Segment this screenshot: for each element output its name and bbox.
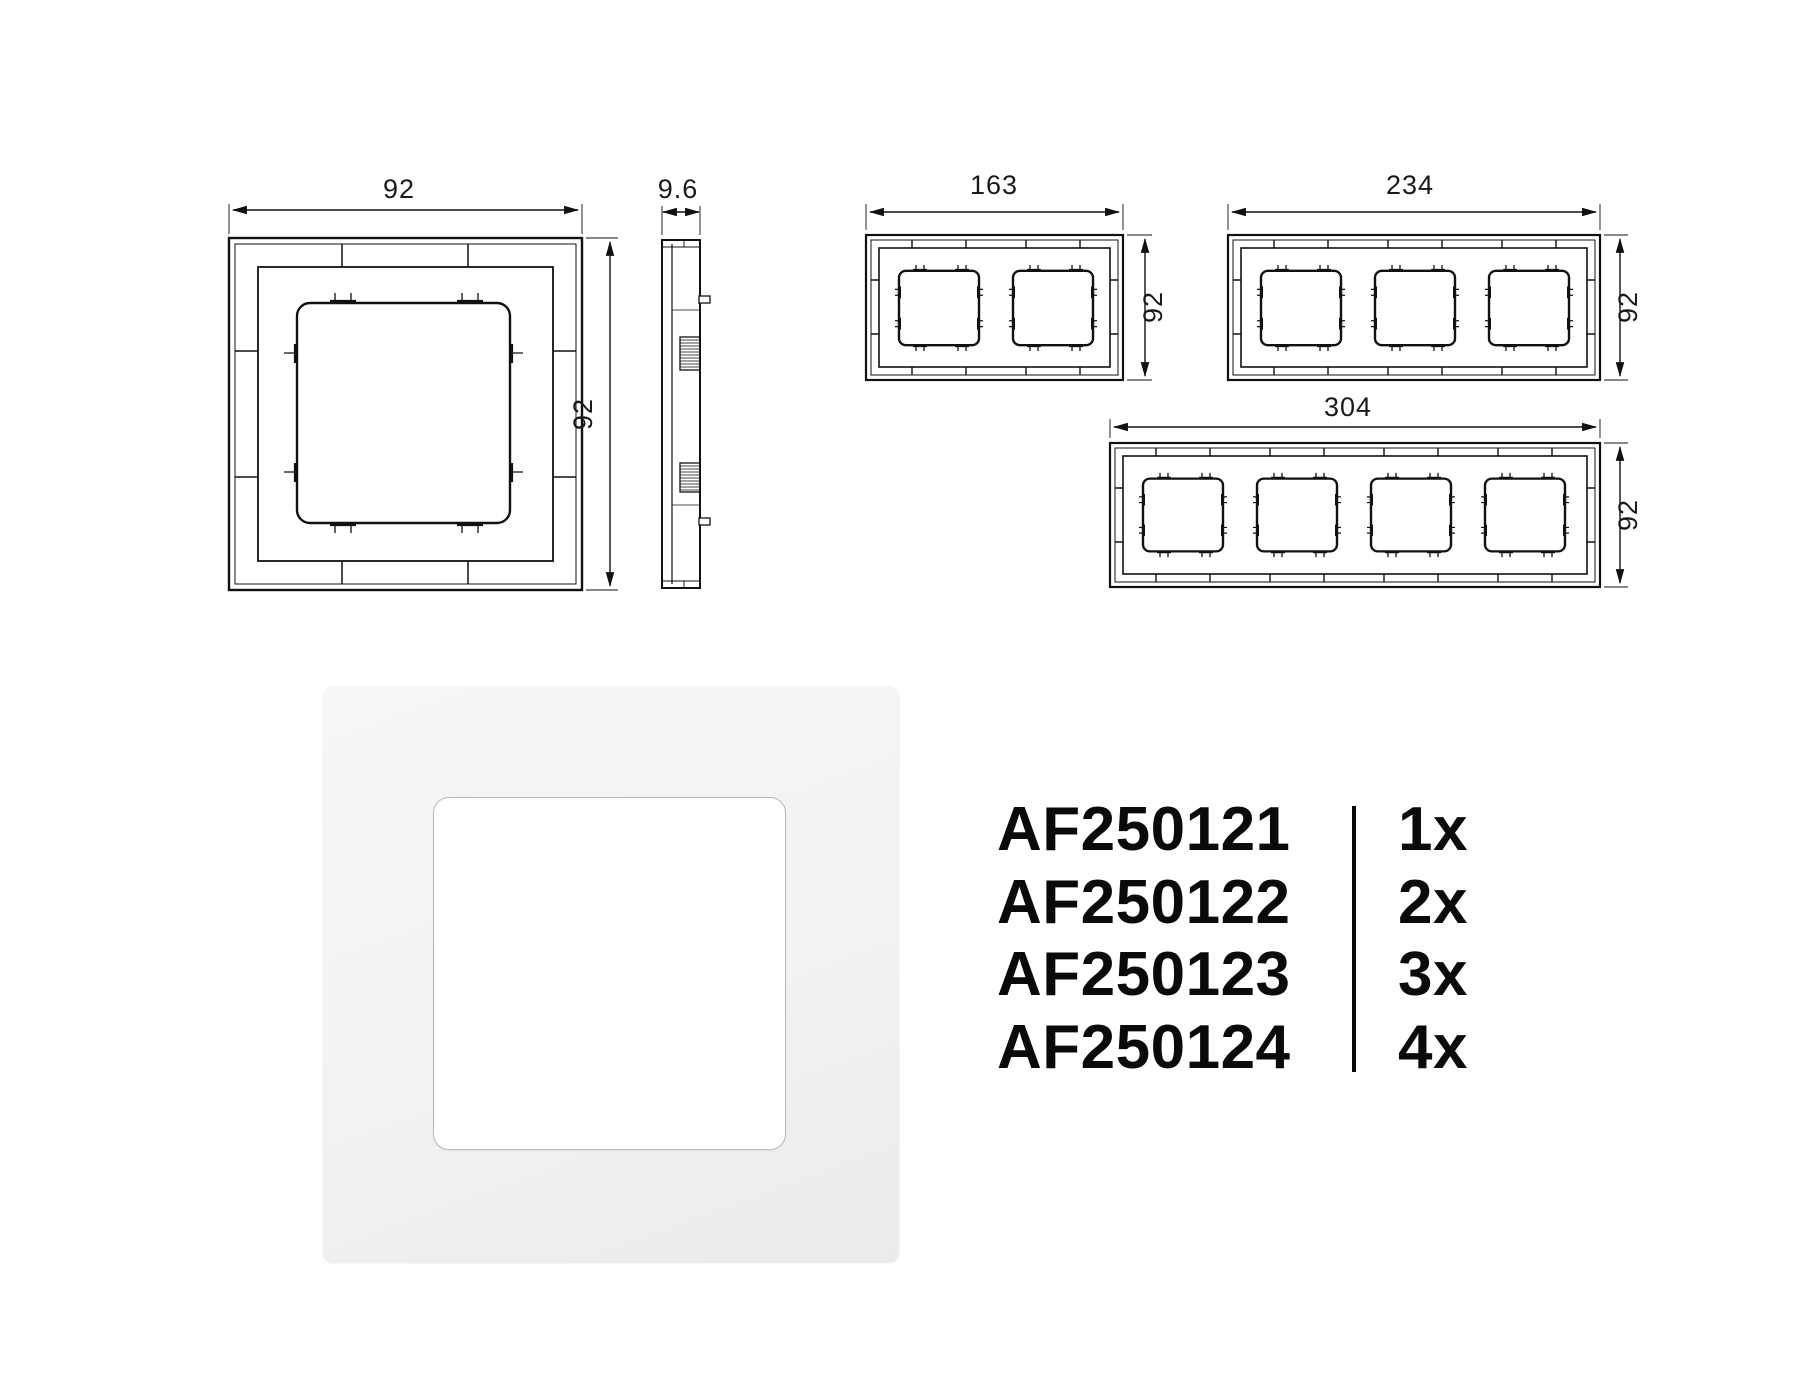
table-divider-line [1352,806,1356,1072]
spec-sheet: 92 9.6 92 163 92 234 92 304 92 AF250121 … [0,0,1800,1400]
drawing-two-gang-frame [866,235,1123,380]
dim-three-gang-height: 92 [1613,291,1643,323]
dim-three-gang-width: 234 [1386,170,1434,200]
drawing-single-frame-side [662,240,710,588]
dim-single-depth: 9.6 [658,174,699,204]
drawing-single-frame-front [229,238,582,590]
dim-single-width: 92 [383,174,415,204]
product-quantity-column: 1x 2x 3x 4x [1398,794,1468,1084]
product-quantity: 1x [1398,794,1468,867]
dim-four-gang-height: 92 [1613,499,1643,531]
dim-two-gang-height: 92 [1138,291,1168,323]
product-quantity: 3x [1398,939,1468,1012]
dim-four-gang-width: 304 [1324,392,1372,422]
product-quantity: 2x [1398,867,1468,940]
product-code: AF250124 [997,1012,1291,1085]
dim-single-height: 92 [568,398,598,430]
dim-two-gang-width: 163 [970,170,1018,200]
product-photo [323,687,899,1263]
photo-frame-opening [433,797,786,1150]
product-quantity: 4x [1398,1012,1468,1085]
drawing-three-gang-frame [1228,235,1600,380]
product-code: AF250123 [997,939,1291,1012]
product-code: AF250121 [997,794,1291,867]
product-code-column: AF250121 AF250122 AF250123 AF250124 [997,794,1291,1084]
technical-drawings-svg: 92 9.6 92 163 92 234 92 304 92 [0,0,1800,660]
drawing-four-gang-frame [1110,443,1600,587]
product-code: AF250122 [997,867,1291,940]
